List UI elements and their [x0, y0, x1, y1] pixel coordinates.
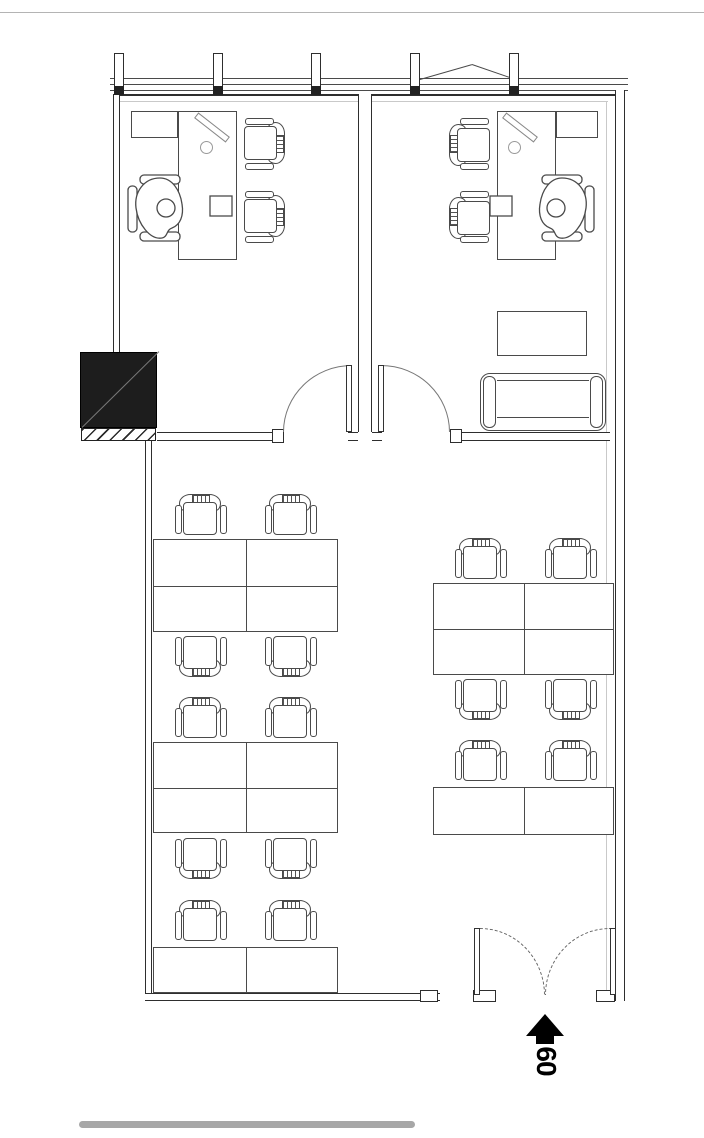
wall [372, 432, 382, 441]
chair-seat [553, 748, 587, 781]
shaft-diagonal [82, 351, 160, 428]
chair-seat [273, 838, 307, 871]
chair-seat [183, 908, 217, 941]
office-chair [265, 494, 317, 538]
office-chair [449, 191, 493, 243]
door-swing-arc [480, 928, 545, 995]
chair-armr [590, 751, 597, 780]
wall [157, 432, 272, 441]
return-cabinet [556, 111, 598, 138]
wall-line [0, 12, 704, 13]
wall [450, 432, 610, 441]
chair-seat [463, 748, 497, 781]
chair-armr [310, 505, 317, 534]
wall [615, 90, 625, 1001]
chair-arml [245, 191, 274, 198]
chair-armr [460, 191, 489, 198]
desk-block [153, 947, 338, 993]
chair-hr [192, 668, 210, 676]
office-chair [449, 118, 493, 170]
office-chair [455, 538, 507, 582]
chair-arml [455, 680, 462, 709]
wall [113, 94, 120, 352]
office-chair [175, 900, 227, 944]
chair-hr [472, 711, 490, 719]
chair-armr [220, 839, 227, 868]
chair-arml [265, 839, 272, 868]
chair-seat [273, 502, 307, 535]
chair-arml [455, 751, 462, 780]
chair-armr [245, 236, 274, 243]
office-chair [175, 697, 227, 741]
person-chair-icon [122, 166, 234, 250]
door-leaf [610, 928, 616, 995]
chair-arml [175, 637, 182, 666]
person-chair-icon [488, 166, 600, 250]
chair-seat [183, 705, 217, 738]
desk-block [153, 742, 338, 833]
chair-hr [282, 668, 300, 676]
side-table [497, 311, 587, 356]
chair-arml [265, 911, 272, 940]
chair-seat [183, 502, 217, 535]
mouse-icon [508, 141, 521, 154]
sofa-armrest-right [590, 376, 603, 428]
wall [358, 94, 372, 432]
chair-armr [220, 708, 227, 737]
wall [145, 993, 440, 1001]
chair-armr [500, 751, 507, 780]
elevator-shaft [80, 352, 157, 428]
chair-arml [545, 549, 552, 578]
mullion-connector [213, 86, 223, 95]
chair-arml [245, 118, 274, 125]
mullion-connector [114, 86, 124, 95]
door-leaf [346, 365, 352, 432]
mouse-icon [200, 141, 213, 154]
door-swing-arc [381, 365, 450, 432]
chair-hr [192, 870, 210, 878]
mullion-connector [509, 86, 519, 95]
chair-armr [460, 118, 489, 125]
entrance-arrow-stem [536, 1036, 554, 1044]
scale-bar [79, 1121, 415, 1128]
chair-seat [273, 908, 307, 941]
chair-seat [463, 679, 497, 712]
office-chair [455, 676, 507, 720]
office-chair [241, 191, 285, 243]
office-chair [545, 740, 597, 784]
office-chair [265, 835, 317, 879]
office-chair [265, 633, 317, 677]
door-leaf [474, 928, 480, 995]
chair-armr [220, 637, 227, 666]
chair-hr [282, 870, 300, 878]
wall-line [110, 84, 628, 85]
chair-arml [460, 163, 489, 170]
chair-arml [545, 680, 552, 709]
office-chair [265, 900, 317, 944]
office-chair [175, 835, 227, 879]
chair-seat [463, 546, 497, 579]
wall-line [606, 101, 607, 991]
chair-arml [265, 708, 272, 737]
chair-seat [457, 128, 490, 162]
entrance-label: 60 [527, 1046, 565, 1076]
desk-divider [246, 948, 247, 992]
chair-arml [175, 911, 182, 940]
wall-line [110, 78, 628, 79]
return-cabinet [131, 111, 178, 138]
office-chair [175, 633, 227, 677]
desk-divider [524, 788, 525, 834]
chair-arml [175, 839, 182, 868]
door-jamb [450, 429, 462, 443]
chair-hr [276, 208, 284, 226]
chair-seat [273, 636, 307, 669]
chair-hr [562, 711, 580, 719]
desk-block [433, 787, 614, 835]
door-swing-arc [545, 928, 610, 995]
chair-armr [500, 680, 507, 709]
wall [145, 441, 152, 1001]
office-chair [241, 118, 285, 170]
chair-arml [455, 549, 462, 578]
sofa-armrest-left [483, 376, 496, 428]
hatch-strip [81, 428, 156, 441]
chair-seat [183, 838, 217, 871]
chair-armr [310, 911, 317, 940]
office-chair [175, 494, 227, 538]
chair-seat [244, 199, 277, 233]
mullion-connector [410, 86, 420, 95]
chair-armr [310, 839, 317, 868]
chair-seat [553, 679, 587, 712]
chair-arml [175, 708, 182, 737]
office-chair [265, 697, 317, 741]
executive-chair-with-person [488, 166, 600, 250]
office-chair [545, 676, 597, 720]
executive-chair-with-person [122, 166, 234, 250]
office-chair [545, 538, 597, 582]
chair-hr [276, 135, 284, 153]
chair-armr [220, 911, 227, 940]
wall [348, 432, 358, 441]
door-jamb [420, 990, 438, 1002]
chair-arml [265, 637, 272, 666]
sofa-back [497, 417, 589, 418]
chair-armr [310, 637, 317, 666]
chair-seat [244, 126, 277, 160]
chair-armr [590, 549, 597, 578]
desk-divider [154, 788, 337, 789]
chair-seat [553, 546, 587, 579]
desk-block [433, 583, 614, 675]
door-swing-arc [283, 365, 352, 432]
chair-armr [220, 505, 227, 534]
wall-line [110, 90, 628, 91]
door-leaf [378, 365, 384, 432]
chair-arml [175, 505, 182, 534]
desk-divider [154, 586, 337, 587]
office-chair [455, 740, 507, 784]
chair-seat [183, 636, 217, 669]
chair-armr [245, 163, 274, 170]
sofa-edge [497, 380, 589, 381]
chair-armr [310, 708, 317, 737]
chair-seat [457, 201, 490, 235]
chair-arml [460, 236, 489, 243]
sofa [480, 373, 606, 431]
chair-armr [500, 549, 507, 578]
entrance-arrow-icon [526, 1014, 564, 1036]
floor-plan: 60 [0, 0, 704, 1138]
desk-block [153, 539, 338, 632]
chair-armr [590, 680, 597, 709]
mullion-connector [311, 86, 321, 95]
chair-seat [273, 705, 307, 738]
chair-arml [265, 505, 272, 534]
desk-divider [434, 629, 613, 630]
chair-arml [545, 751, 552, 780]
